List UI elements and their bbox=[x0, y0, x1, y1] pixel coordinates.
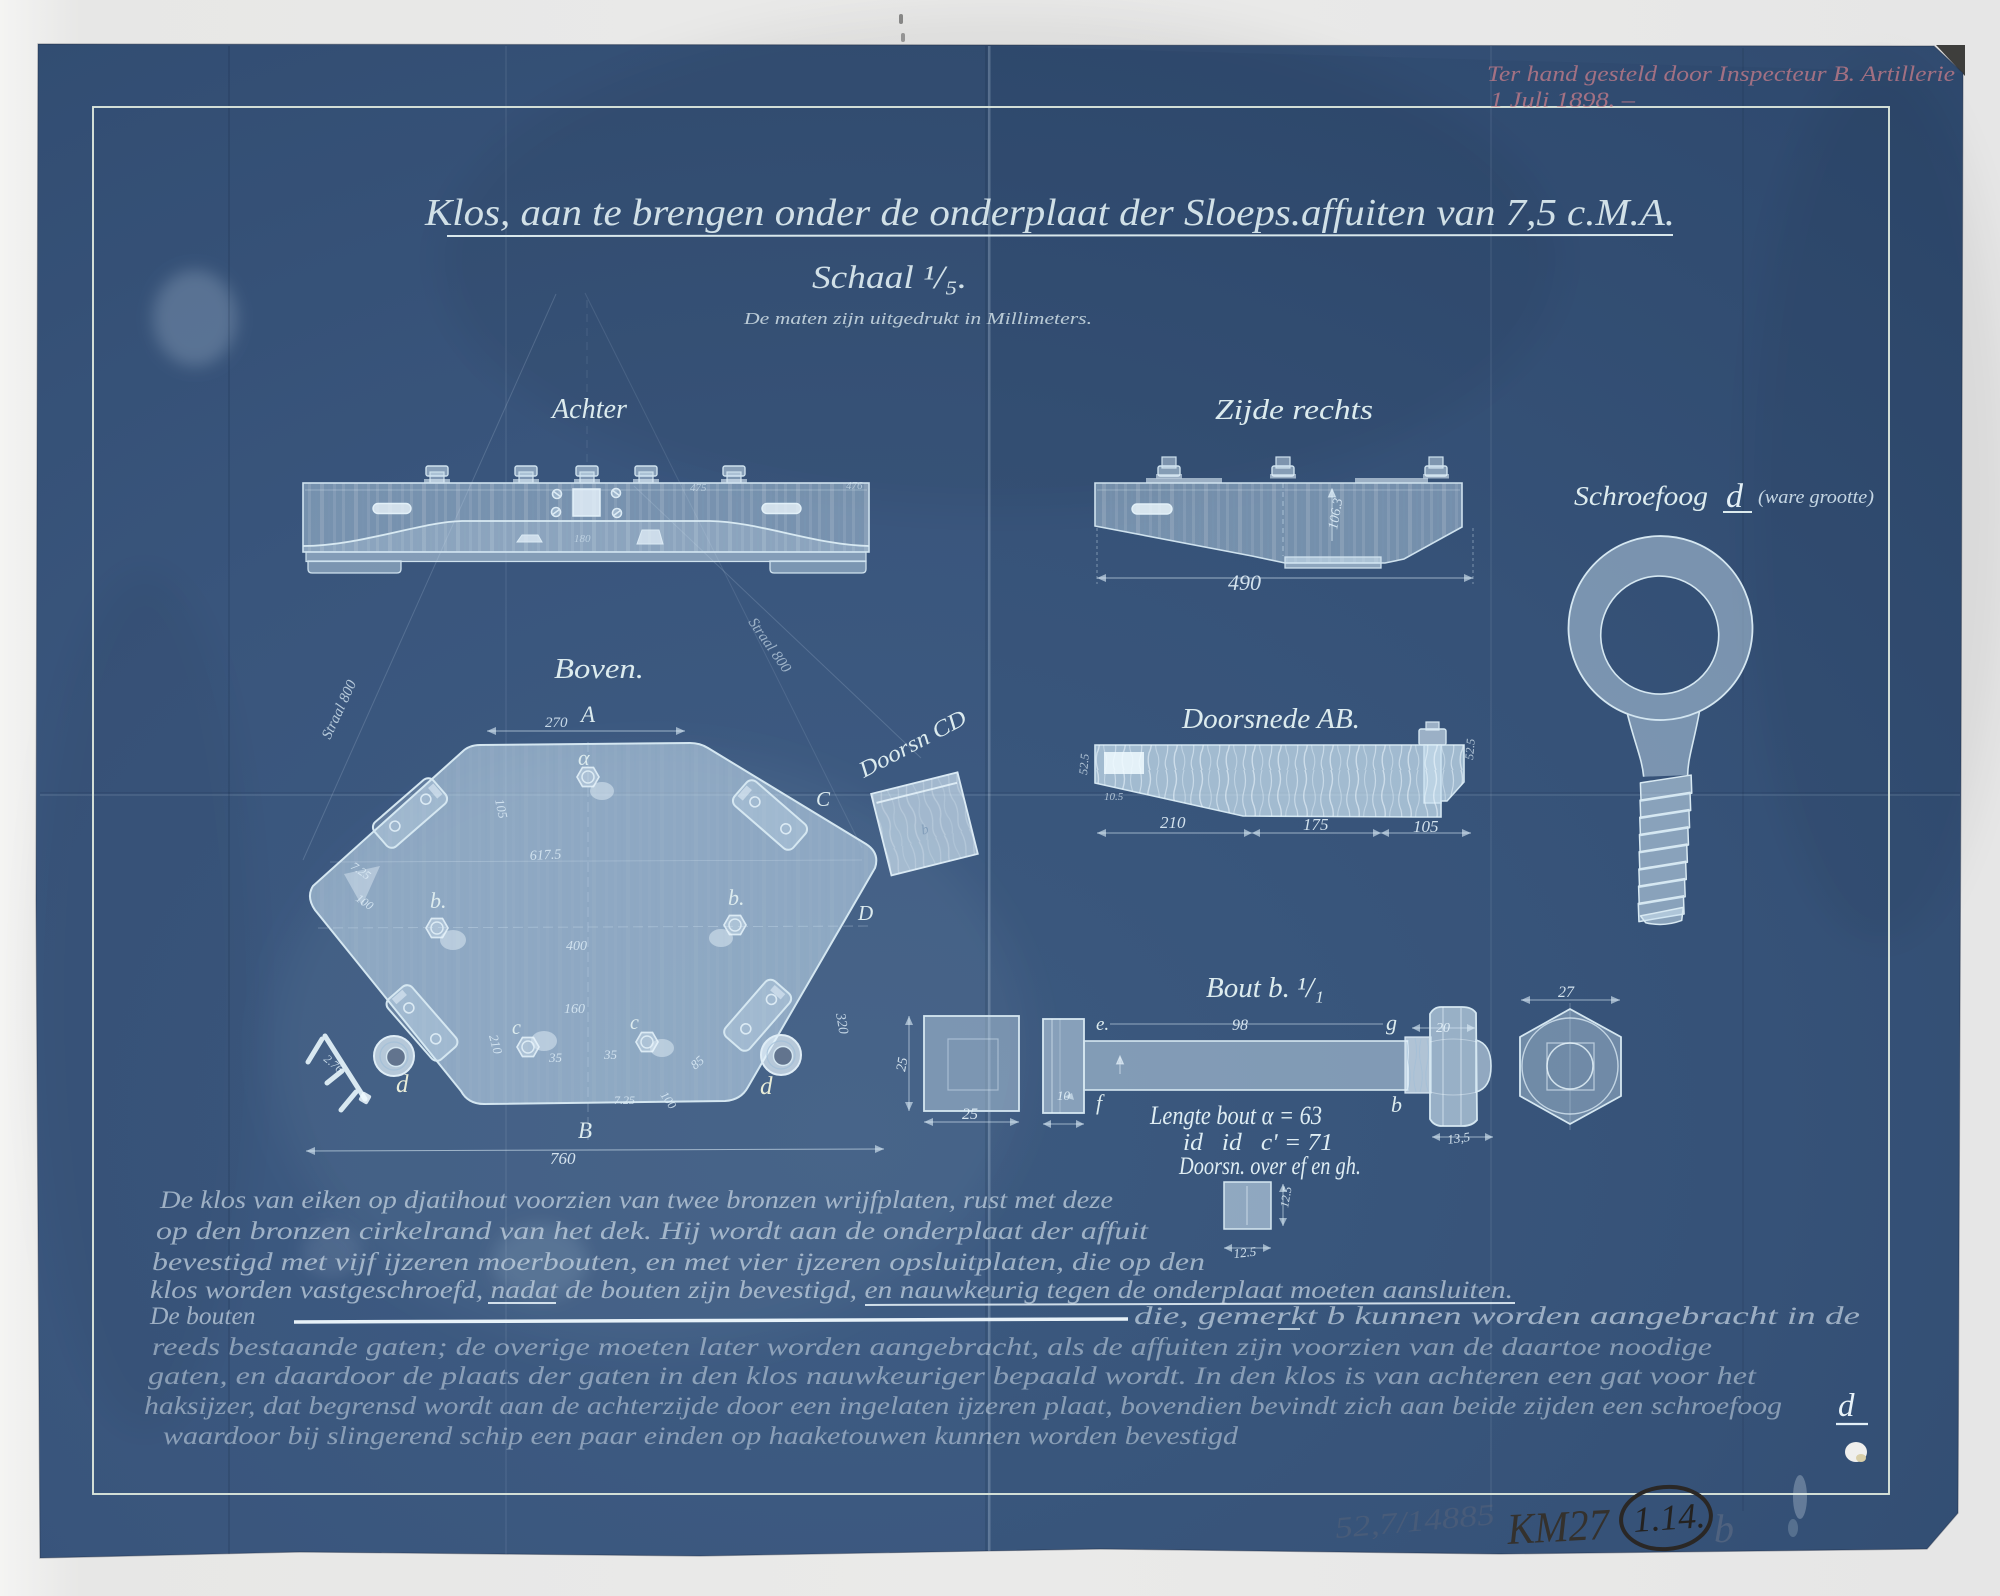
svg-text:De bouten: De bouten bbox=[149, 1301, 256, 1330]
svg-text:bevestigd met vijf ijzeren moe: bevestigd met vijf ijzeren moerbouten, e… bbox=[152, 1247, 1205, 1276]
svg-text:476: 476 bbox=[846, 480, 863, 492]
svg-text:210: 210 bbox=[1160, 813, 1186, 832]
svg-text:760: 760 bbox=[550, 1149, 576, 1168]
svg-text:20: 20 bbox=[1436, 1021, 1450, 1036]
svg-text:1.14.: 1.14. bbox=[1632, 1495, 1707, 1540]
svg-text:10.5: 10.5 bbox=[1104, 791, 1124, 803]
svg-text:KM27: KM27 bbox=[1505, 1500, 1612, 1554]
svg-text:Schroefoog: Schroefoog bbox=[1574, 481, 1708, 511]
svg-text:die, gemerkt b kunnen worden a: die, gemerkt b kunnen worden aangebracht… bbox=[1134, 1301, 1860, 1330]
svg-text:De maten zijn uitgedrukt in Mi: De maten zijn uitgedrukt in Millimeters. bbox=[743, 309, 1092, 328]
svg-text:35: 35 bbox=[548, 1050, 563, 1065]
svg-text:617.5: 617.5 bbox=[529, 847, 561, 864]
svg-text:Zijde rechts: Zijde rechts bbox=[1215, 394, 1373, 426]
svg-text:180: 180 bbox=[574, 533, 591, 545]
svg-text:400: 400 bbox=[566, 939, 587, 954]
svg-text:e.: e. bbox=[1096, 1014, 1109, 1035]
svg-text:Achter: Achter bbox=[550, 393, 628, 425]
svg-text:gaten, en daardoor de plaats d: gaten, en daardoor de plaats der gaten i… bbox=[148, 1361, 1757, 1390]
svg-text:C: C bbox=[816, 787, 831, 811]
svg-text:B: B bbox=[578, 1118, 592, 1143]
svg-text:25: 25 bbox=[962, 1106, 978, 1123]
svg-text:Bout b. ¹/₁: Bout b. ¹/₁ bbox=[1206, 972, 1324, 1004]
svg-text:b.: b. bbox=[430, 888, 447, 913]
svg-text:13,5: 13,5 bbox=[1446, 1129, 1471, 1147]
svg-text:(ware grootte): (ware grootte) bbox=[1758, 487, 1874, 508]
svg-text:160: 160 bbox=[564, 1002, 585, 1017]
svg-text:35: 35 bbox=[603, 1047, 618, 1062]
svg-text:reeds bestaande gaten; de over: reeds bestaande gaten; de overige moeten… bbox=[152, 1332, 1712, 1361]
svg-text:op den bronzen cirkelrand van: op den bronzen cirkelrand van het dek. H… bbox=[156, 1216, 1149, 1245]
svg-text:Doorsn. over ef en gh.: Doorsn. over ef en gh. bbox=[1178, 1153, 1361, 1180]
svg-text:De klos van eiken op djatihout: De klos van eiken op djatihout voorzien … bbox=[159, 1185, 1113, 1214]
svg-text:Boven.: Boven. bbox=[554, 653, 644, 685]
svg-text:α: α bbox=[578, 745, 590, 770]
svg-text:27: 27 bbox=[1558, 984, 1575, 1001]
svg-text:b.: b. bbox=[728, 885, 745, 910]
svg-text:D: D bbox=[857, 901, 873, 925]
svg-text:b: b bbox=[1714, 1506, 1734, 1551]
svg-text:52.5: 52.5 bbox=[1462, 738, 1478, 760]
svg-text:270: 270 bbox=[545, 715, 568, 731]
svg-text:d: d bbox=[760, 1073, 773, 1100]
svg-text:klos worden vastgeschroefd, na: klos worden vastgeschroefd, nadat de bou… bbox=[150, 1275, 1513, 1304]
svg-text:98: 98 bbox=[1232, 1017, 1248, 1034]
svg-text:Lengte bout α = 63: Lengte bout α = 63 bbox=[1149, 1101, 1322, 1130]
svg-text:d: d bbox=[1726, 478, 1744, 515]
svg-text:A: A bbox=[579, 702, 596, 727]
svg-text:b: b bbox=[1391, 1092, 1402, 1117]
svg-text:haksijzer, dat begrensd wordt: haksijzer, dat begrensd wordt aan de ach… bbox=[144, 1391, 1782, 1420]
svg-text:490: 490 bbox=[1228, 570, 1261, 595]
svg-text:25: 25 bbox=[894, 1056, 911, 1072]
svg-text:d: d bbox=[1838, 1388, 1855, 1424]
svg-text:175: 175 bbox=[1303, 815, 1329, 834]
svg-text:475: 475 bbox=[690, 482, 707, 494]
svg-text:waardoor bij slingerend schip: waardoor bij slingerend schip een paar e… bbox=[163, 1421, 1238, 1450]
svg-text:105: 105 bbox=[1413, 817, 1439, 836]
svg-text:12.5: 12.5 bbox=[1233, 1244, 1258, 1261]
svg-text:Schaal ¹/₅.: Schaal ¹/₅. bbox=[812, 260, 967, 296]
svg-text:7.25: 7.25 bbox=[614, 1093, 635, 1107]
svg-text:Klos, aan te brengen onder de: Klos, aan te brengen onder de onderplaat… bbox=[424, 192, 1675, 234]
svg-text:1 Juli 1898. –: 1 Juli 1898. – bbox=[1490, 87, 1636, 112]
svg-text:g: g bbox=[1386, 1010, 1397, 1035]
svg-text:c: c bbox=[512, 1017, 521, 1039]
svg-text:52.5: 52.5 bbox=[1076, 753, 1092, 775]
svg-text:c: c bbox=[630, 1012, 639, 1034]
svg-text:Doorsnede AB.: Doorsnede AB. bbox=[1181, 704, 1360, 735]
svg-text:Ter hand gesteld door Inspecte: Ter hand gesteld door Inspecteur B. Arti… bbox=[1487, 61, 1955, 86]
